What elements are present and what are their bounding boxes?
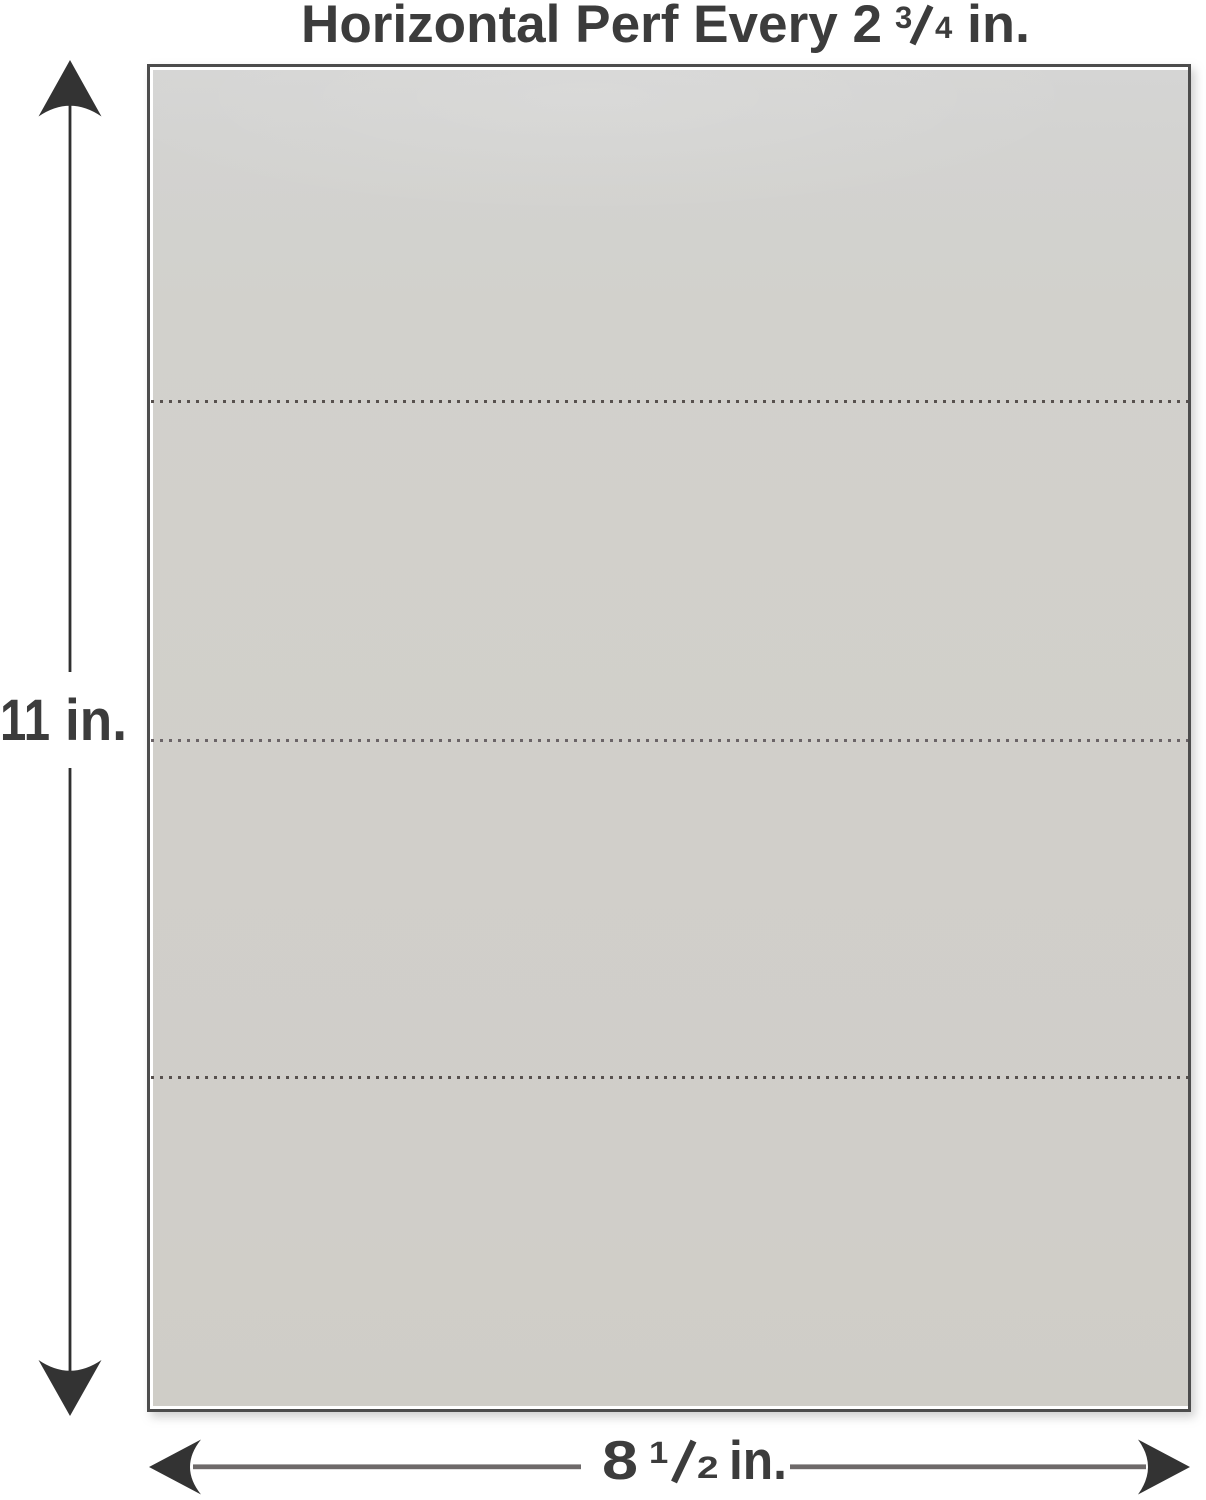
svg-text:11: 11 — [0, 688, 50, 753]
svg-text:in.: in. — [65, 688, 127, 753]
svg-text:8: 8 — [602, 1429, 638, 1491]
svg-text:in.: in. — [729, 1429, 787, 1491]
svg-text:in.: in. — [967, 0, 1030, 54]
svg-text:Horizontal Perf Every 2: Horizontal Perf Every 2 — [301, 0, 882, 54]
